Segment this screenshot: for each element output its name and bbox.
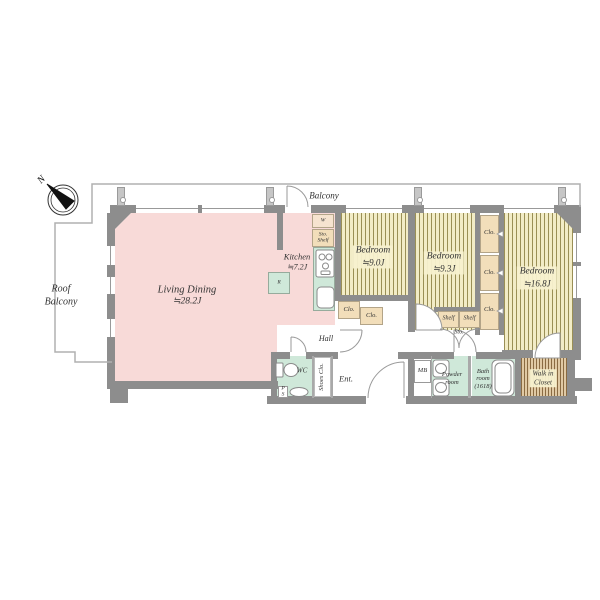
balcony-post-3 (414, 187, 422, 206)
shelf-label-1: Shelf (443, 315, 455, 323)
ps-line2: S (281, 392, 284, 398)
clo-label-b1a: Clo. (343, 306, 354, 314)
window-left-3 (107, 319, 115, 337)
bath-room-label: Bath room (1618) (474, 368, 491, 390)
bedroom-9-3-name: Bedroom (427, 251, 461, 263)
wall-bedroom1-bedroom2 (408, 213, 415, 332)
bedroom-9-3-label: Bedroom ≒9.3J (424, 251, 464, 274)
roof-balcony-line1: Roof (45, 284, 78, 297)
window-bedroom3 (504, 205, 554, 213)
bedroom-9-0-label: Bedroom ≒9.0J (353, 245, 393, 268)
hall-label: Hall (319, 334, 333, 344)
bedroom-16-8-name: Bedroom (520, 266, 554, 278)
powder-room-line2: room (442, 379, 462, 387)
clo-label-stack2: Clo. (484, 269, 495, 277)
shoes-closet-label: Shoes Clo. (318, 363, 326, 391)
ent-label: Ent. (339, 374, 353, 385)
wall-chamfer-livingdining (115, 213, 131, 229)
roof-balcony-label: Roof Balcony (45, 284, 78, 309)
wall-wc-left (271, 352, 277, 404)
window-living-1 (136, 205, 198, 213)
opening-balcony-door (285, 205, 311, 213)
walk-in-closet-label: Walk in Closet (530, 369, 557, 387)
floor-plan: N Balcony Roof Balcony Living Dining ≒28… (0, 0, 600, 600)
kitchen-name: Kitchen (284, 252, 310, 263)
wall-kitchen-stub (277, 213, 283, 250)
bedroom-9-0-area: ≒9.0J (356, 257, 390, 268)
wall-kitchen-bedroom1 (335, 213, 341, 301)
powder-room-label: Powder room (442, 371, 462, 387)
bedroom-16-8-area: ≒16.8J (520, 278, 554, 289)
wc-label: WC (297, 367, 308, 376)
wall-closet-right (499, 213, 504, 335)
powder-room-line1: Powder (442, 371, 462, 379)
kitchen-area: ≒7.2J (284, 262, 310, 272)
living-dining-area: ≒28.2J (158, 297, 217, 309)
bedroom-9-0-name: Bedroom (356, 245, 390, 257)
kitchen-counter (313, 247, 335, 311)
bedroom-9-3-area: ≒9.3J (427, 263, 461, 274)
living-dining-label: Living Dining ≒28.2J (158, 284, 217, 309)
wall-bath-wic (515, 352, 521, 398)
bath-room-line3: (1618) (474, 383, 491, 390)
wall-chamfer-bedroom3 (557, 213, 573, 229)
roof-balcony-line2: Balcony (45, 296, 78, 309)
clo-label-b1b: Clo. (366, 312, 377, 320)
bath-room-line2: room (474, 375, 491, 382)
wall-ld-bottom (110, 381, 278, 389)
living-dining-name: Living Dining (158, 284, 217, 297)
balcony-label: Balcony (309, 190, 339, 201)
wall-left (107, 213, 115, 389)
fridge-label: R (277, 280, 280, 287)
mb-label: MB (418, 367, 427, 375)
bath-room-line1: Bath (474, 368, 491, 375)
compass-icon: N (35, 173, 78, 215)
balcony-post-4 (558, 187, 566, 206)
door-entrance (368, 362, 404, 398)
kitchen-shelf-line: Shelf (318, 238, 329, 244)
kitchen-sto-shelf-label: Sto. Shelf (318, 232, 329, 245)
wall-right-stub (575, 378, 592, 391)
door-wc (291, 337, 306, 352)
kitchen-label: Kitchen ≒7.2J (284, 252, 310, 273)
window-left-2 (107, 277, 115, 294)
walk-in-closet-line1: Walk in (533, 369, 554, 378)
window-right-2 (573, 266, 581, 298)
walk-in-closet-line2: Closet (533, 378, 554, 387)
clo-label-stack1: Clo. (484, 229, 495, 237)
balcony-post-1 (117, 187, 125, 206)
window-left-1 (107, 246, 115, 265)
door-balcony (287, 186, 308, 207)
sto-label: Sto. (454, 329, 463, 337)
wall-corridor-c (398, 352, 454, 359)
divider-powder-bath (468, 356, 471, 398)
wall-wic-right (567, 352, 575, 398)
clo-label-stack3: Clo. (484, 306, 495, 314)
opening-bedroom3-door (533, 350, 559, 358)
shelf-label-2: Shelf (464, 315, 476, 323)
divider-shoes-ent (331, 356, 333, 398)
opening-entrance-door (366, 396, 406, 404)
bedroom-16-8-label: Bedroom ≒16.8J (517, 266, 557, 289)
window-living-2 (202, 205, 264, 213)
window-bedroom1 (346, 205, 402, 213)
divider-ent-powder (431, 356, 432, 398)
washer-label: W (321, 218, 326, 225)
pipe-space-label: P S (281, 387, 284, 398)
window-bedroom2 (424, 205, 470, 213)
compass-n-label: N (35, 173, 49, 187)
window-right-1 (573, 233, 581, 262)
door-bedroom1 (340, 330, 362, 352)
balcony-post-2 (266, 187, 274, 206)
